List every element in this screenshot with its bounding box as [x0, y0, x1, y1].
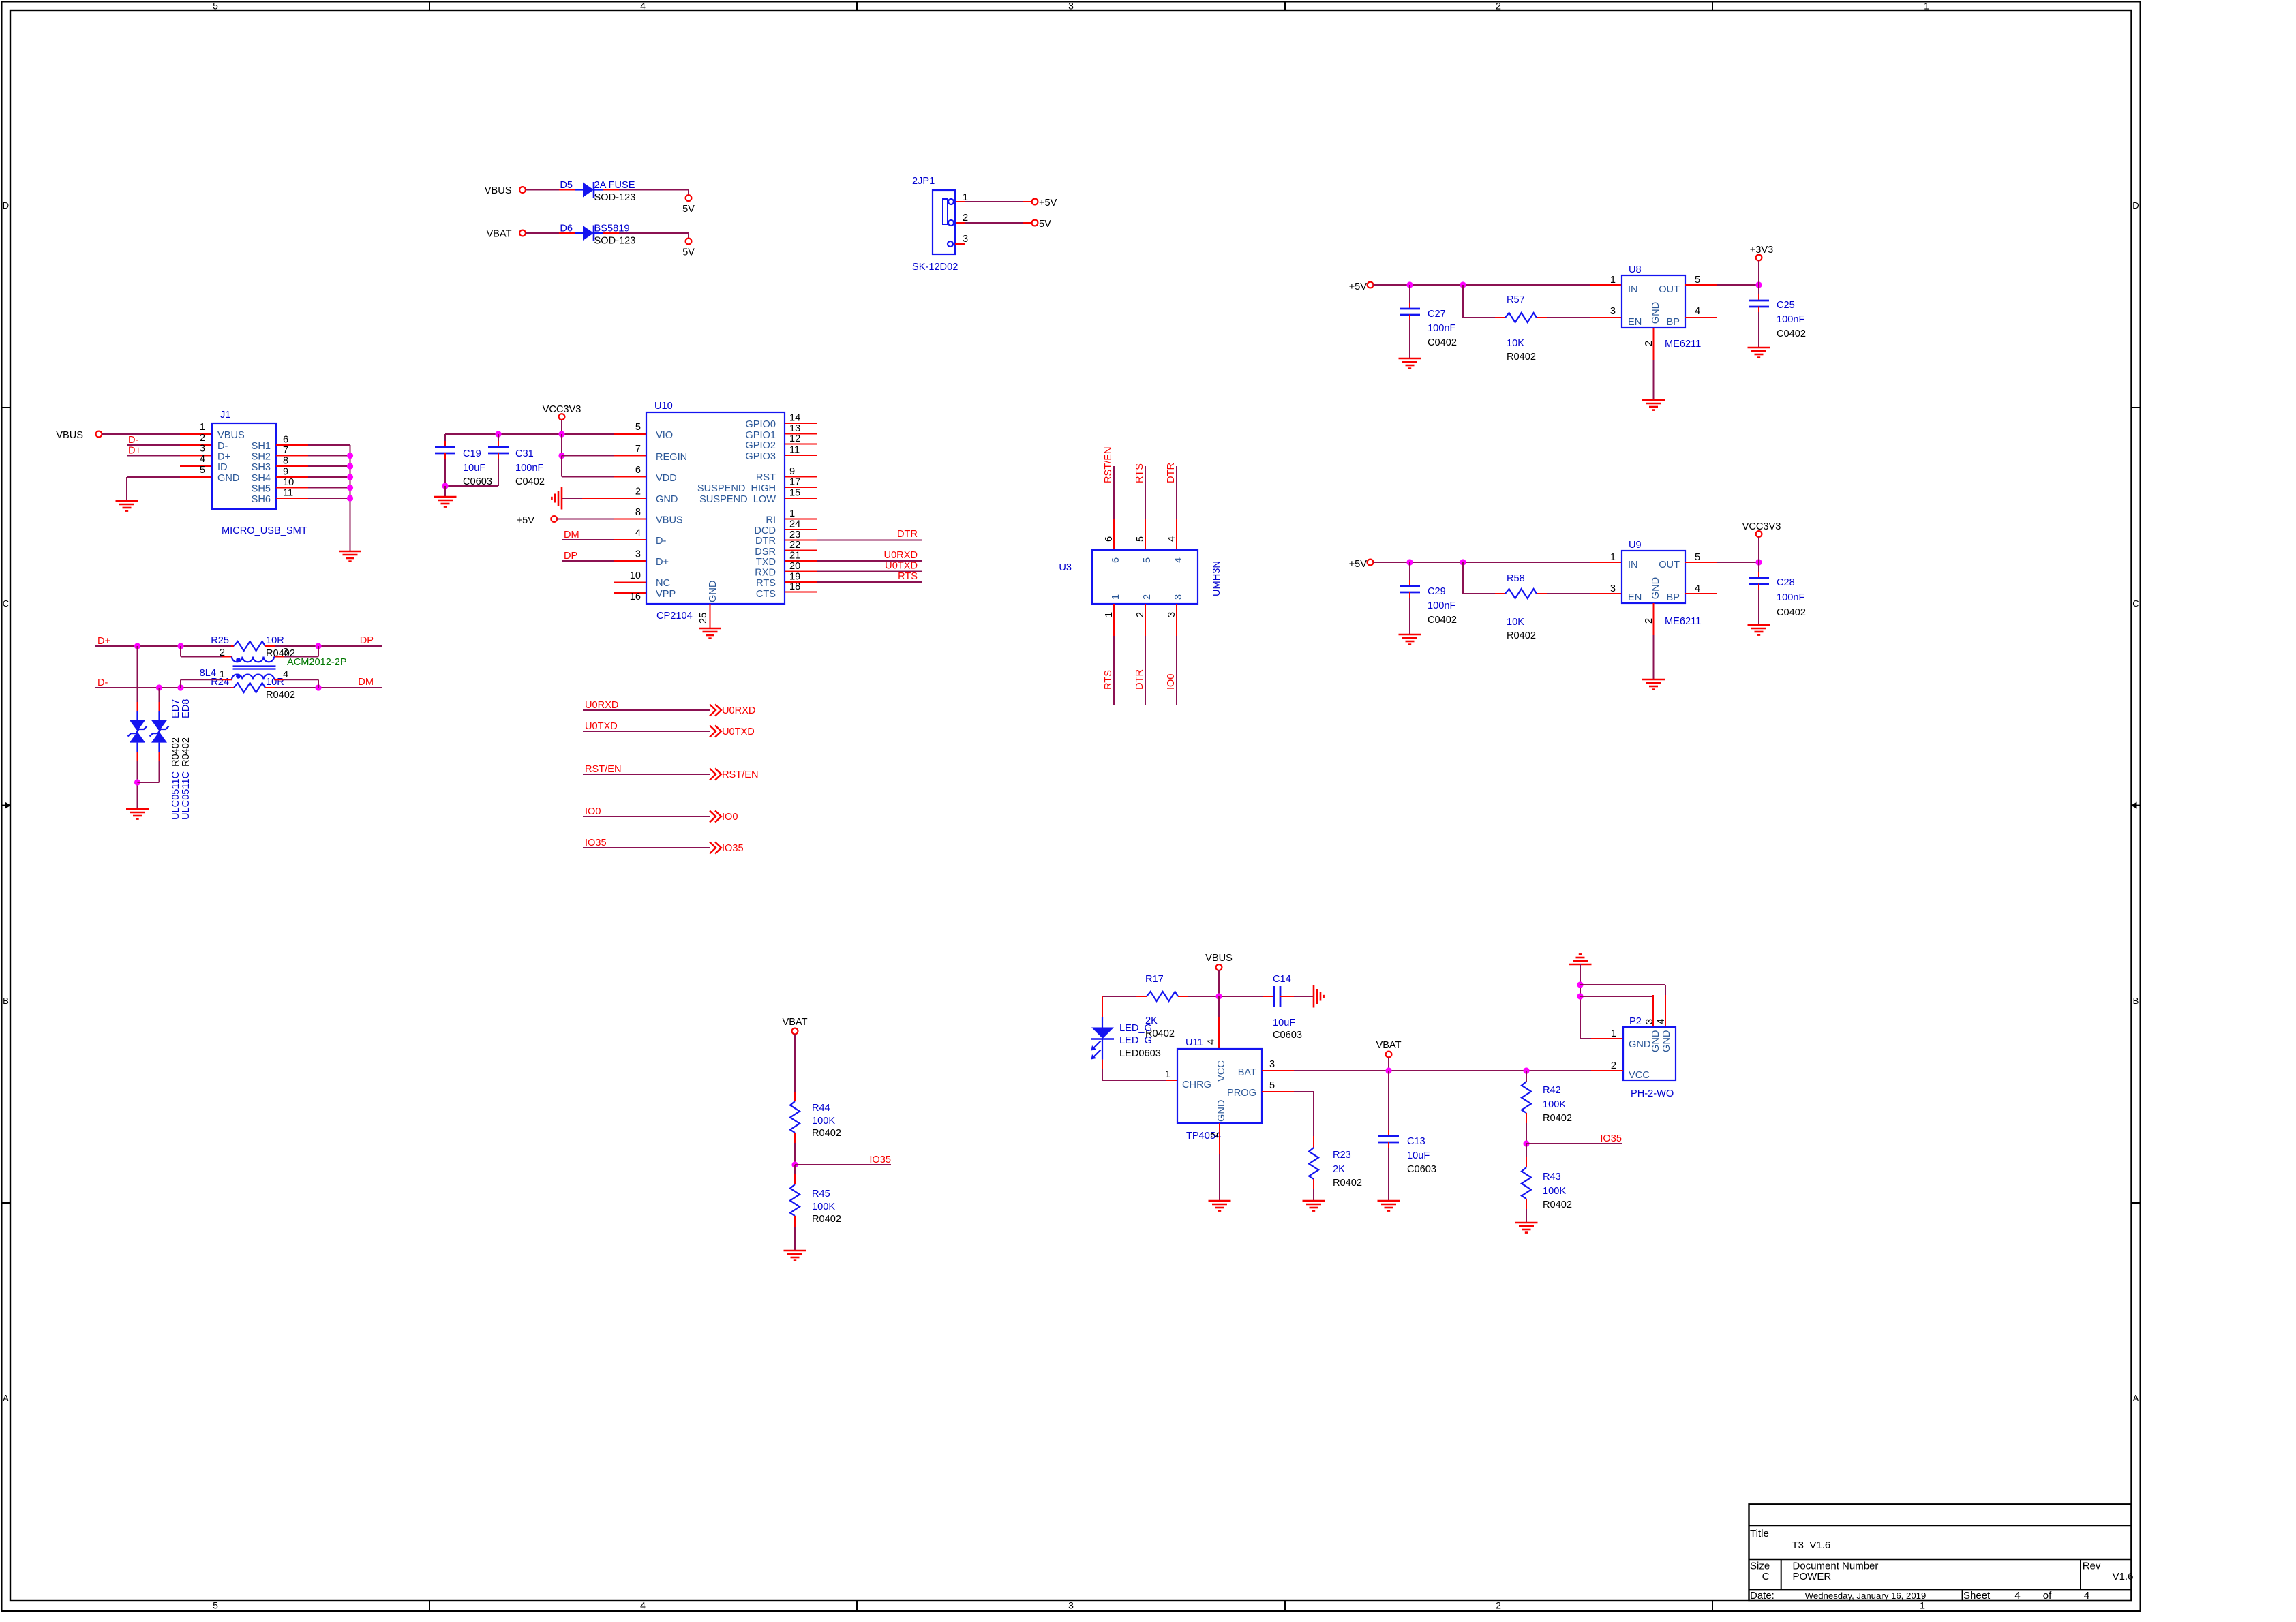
svg-text:3: 3 — [635, 549, 641, 560]
svg-text:D5: D5 — [560, 180, 573, 191]
svg-text:100nF: 100nF — [1428, 323, 1455, 334]
svg-text:100K: 100K — [1543, 1186, 1566, 1197]
svg-text:DSR: DSR — [755, 547, 776, 557]
svg-text:21: 21 — [789, 551, 800, 562]
svg-text:4: 4 — [283, 669, 288, 680]
svg-text:100nF: 100nF — [1428, 600, 1455, 611]
svg-text:2: 2 — [1496, 1, 1501, 12]
svg-text:SH3: SH3 — [252, 462, 271, 473]
svg-text:C14: C14 — [1273, 974, 1291, 985]
svg-text:16: 16 — [630, 592, 641, 602]
svg-text:1: 1 — [200, 422, 205, 433]
svg-text:VBUS: VBUS — [217, 430, 245, 441]
svg-text:2: 2 — [1611, 1060, 1616, 1071]
svg-text:3: 3 — [963, 234, 968, 245]
svg-text:+5V: +5V — [1039, 198, 1057, 209]
svg-text:D+: D+ — [217, 452, 230, 463]
svg-text:100K: 100K — [1543, 1099, 1566, 1110]
svg-text:3: 3 — [1644, 1019, 1655, 1024]
svg-text:R0402: R0402 — [1543, 1113, 1572, 1124]
svg-text:of: of — [2043, 1590, 2052, 1602]
svg-text:OUT: OUT — [1659, 284, 1680, 295]
svg-text:R58: R58 — [1507, 573, 1525, 584]
svg-text:1: 1 — [1920, 1600, 1925, 1611]
svg-text:5: 5 — [213, 1, 218, 12]
svg-text:5V: 5V — [682, 204, 695, 215]
svg-text:3: 3 — [200, 444, 205, 455]
svg-text:VBUS: VBUS — [56, 430, 83, 441]
svg-text:3: 3 — [1173, 594, 1184, 600]
svg-text:4: 4 — [1166, 536, 1177, 542]
svg-text:R0402: R0402 — [266, 690, 295, 701]
svg-text:B: B — [2133, 996, 2139, 1006]
svg-text:D-: D- — [97, 677, 108, 688]
svg-text:9: 9 — [789, 466, 795, 477]
svg-text:Wednesday, January 16, 2019: Wednesday, January 16, 2019 — [1805, 1591, 1927, 1601]
svg-text:DP: DP — [564, 551, 577, 562]
svg-text:IO35: IO35 — [1600, 1133, 1622, 1144]
svg-text:1: 1 — [1611, 1028, 1616, 1039]
svg-text:10uF: 10uF — [463, 463, 485, 474]
svg-text:GPIO2: GPIO2 — [745, 440, 776, 451]
svg-text:1: 1 — [1111, 594, 1121, 600]
svg-text:D+: D+ — [656, 557, 669, 568]
svg-text:RST/EN: RST/EN — [1103, 446, 1114, 483]
svg-text:R0402: R0402 — [812, 1214, 841, 1225]
svg-text:C31: C31 — [515, 448, 534, 459]
svg-text:GND: GND — [217, 473, 239, 484]
svg-text:C29: C29 — [1428, 586, 1446, 597]
svg-text:R0402: R0402 — [181, 737, 192, 767]
svg-text:U0TXD: U0TXD — [585, 721, 618, 732]
svg-text:U0RXD: U0RXD — [884, 550, 918, 561]
svg-text:SH2: SH2 — [252, 452, 271, 463]
svg-text:C0402: C0402 — [1428, 615, 1457, 626]
svg-text:6: 6 — [1104, 536, 1115, 542]
svg-text:GND: GND — [1661, 1030, 1672, 1052]
svg-text:TXD: TXD — [756, 557, 776, 568]
svg-text:SK-12D02: SK-12D02 — [912, 262, 958, 273]
svg-text:GND: GND — [1629, 1039, 1650, 1050]
svg-text:4: 4 — [2084, 1590, 2089, 1602]
svg-text:U0TXD: U0TXD — [885, 561, 918, 572]
svg-text:24: 24 — [789, 519, 800, 530]
svg-text:VBAT: VBAT — [782, 1017, 807, 1028]
svg-text:GPIO3: GPIO3 — [745, 451, 776, 462]
svg-text:5: 5 — [213, 1600, 218, 1611]
svg-text:5: 5 — [1269, 1080, 1275, 1091]
svg-text:GND: GND — [1650, 302, 1661, 324]
svg-text:U0RXD: U0RXD — [722, 705, 755, 716]
svg-text:+5V: +5V — [517, 515, 535, 526]
svg-text:4: 4 — [2014, 1590, 2020, 1602]
svg-text:SOD-123: SOD-123 — [594, 236, 636, 247]
svg-text:Rev: Rev — [2083, 1561, 2101, 1572]
svg-text:SH4: SH4 — [252, 473, 271, 484]
svg-text:IO0: IO0 — [1166, 673, 1177, 690]
svg-text:IO0: IO0 — [585, 806, 601, 817]
svg-text:Document Number: Document Number — [1793, 1561, 1879, 1572]
svg-text:3: 3 — [1610, 306, 1616, 317]
svg-text:R0402: R0402 — [1333, 1178, 1362, 1189]
svg-text:C0402: C0402 — [1777, 328, 1806, 339]
svg-text:T3_V1.6: T3_V1.6 — [1792, 1540, 1831, 1551]
svg-text:ED8: ED8 — [181, 699, 192, 718]
svg-text:VCC3V3: VCC3V3 — [1742, 521, 1781, 532]
svg-text:RTS: RTS — [1103, 670, 1114, 690]
svg-text:GND: GND — [1216, 1100, 1227, 1122]
svg-text:RST: RST — [756, 472, 776, 483]
svg-text:U0RXD: U0RXD — [585, 700, 618, 711]
svg-text:4: 4 — [640, 1, 646, 12]
svg-text:SOD-123: SOD-123 — [594, 192, 636, 203]
svg-text:5: 5 — [1695, 552, 1700, 563]
svg-text:C27: C27 — [1428, 309, 1446, 320]
svg-text:C19: C19 — [463, 448, 481, 459]
svg-text:+5V: +5V — [1349, 281, 1368, 292]
svg-text:10uF: 10uF — [1273, 1017, 1295, 1028]
svg-text:4: 4 — [1695, 583, 1700, 594]
svg-text:REGIN: REGIN — [656, 452, 687, 463]
svg-text:22: 22 — [789, 540, 800, 551]
svg-text:LED0603: LED0603 — [1119, 1048, 1161, 1059]
svg-text:4: 4 — [1656, 1019, 1667, 1024]
svg-text:A: A — [3, 1393, 9, 1403]
svg-text:25: 25 — [698, 613, 709, 624]
svg-text:2: 2 — [1142, 594, 1153, 600]
svg-text:BP: BP — [1667, 317, 1680, 328]
svg-text:PH-2-WO: PH-2-WO — [1631, 1088, 1674, 1099]
svg-text:R17: R17 — [1145, 974, 1164, 985]
svg-text:4: 4 — [1173, 557, 1184, 563]
svg-text:UMH3N: UMH3N — [1211, 561, 1222, 596]
svg-text:VBAT: VBAT — [1376, 1040, 1401, 1051]
svg-text:DTR: DTR — [1166, 463, 1177, 483]
svg-text:1: 1 — [1610, 552, 1616, 563]
svg-text:PROG: PROG — [1227, 1088, 1256, 1099]
svg-text:NC: NC — [656, 578, 670, 589]
svg-text:U9: U9 — [1629, 540, 1642, 551]
svg-text:17: 17 — [789, 477, 800, 488]
svg-text:19: 19 — [789, 572, 800, 583]
svg-text:A: A — [2133, 1393, 2139, 1403]
svg-text:+5V: +5V — [1349, 559, 1368, 570]
svg-text:RST/EN: RST/EN — [722, 769, 759, 780]
svg-text:LED_G: LED_G — [1119, 1035, 1152, 1046]
svg-text:7: 7 — [283, 445, 288, 456]
svg-text:7: 7 — [635, 444, 641, 455]
svg-text:D: D — [3, 200, 9, 211]
svg-text:GND: GND — [1650, 1030, 1661, 1052]
svg-text:5V: 5V — [682, 247, 695, 258]
svg-text:R57: R57 — [1507, 294, 1525, 305]
svg-text:C0402: C0402 — [1777, 607, 1806, 618]
svg-text:LED_G: LED_G — [1119, 1023, 1152, 1034]
svg-text:10: 10 — [630, 570, 641, 581]
svg-text:U10: U10 — [654, 401, 673, 412]
svg-text:D+: D+ — [97, 636, 110, 647]
svg-text:6: 6 — [283, 435, 288, 446]
svg-text:MICRO_USB_SMT: MICRO_USB_SMT — [222, 525, 307, 536]
svg-text:R0402: R0402 — [1507, 630, 1536, 641]
svg-text:3: 3 — [1610, 583, 1616, 594]
svg-text:V1.6: V1.6 — [2113, 1571, 2134, 1582]
svg-text:DP: DP — [360, 635, 374, 646]
svg-text:C25: C25 — [1777, 300, 1795, 311]
svg-text:4: 4 — [200, 454, 205, 465]
svg-text:R0402: R0402 — [812, 1128, 841, 1139]
svg-text:VDD: VDD — [656, 473, 677, 484]
svg-text:2: 2 — [1496, 1600, 1501, 1611]
svg-text:Sheet: Sheet — [1963, 1590, 1991, 1602]
svg-text:P2: P2 — [1629, 1016, 1642, 1027]
svg-text:4: 4 — [635, 528, 641, 539]
svg-text:C0603: C0603 — [1273, 1030, 1302, 1041]
svg-text:POWER: POWER — [1793, 1571, 1832, 1582]
svg-text:D-: D- — [656, 536, 667, 547]
svg-text:IO35: IO35 — [585, 838, 607, 848]
svg-text:5: 5 — [635, 422, 641, 433]
svg-text:1: 1 — [789, 508, 795, 519]
svg-text:ULC0511C: ULC0511C — [181, 771, 192, 820]
svg-text:VPP: VPP — [656, 589, 676, 600]
svg-text:GND: GND — [1650, 577, 1661, 599]
svg-text:8: 8 — [635, 507, 641, 518]
svg-text:GPIO1: GPIO1 — [745, 430, 776, 441]
svg-text:BP: BP — [1667, 592, 1680, 603]
svg-text:DTR: DTR — [897, 529, 918, 540]
svg-text:GND: GND — [708, 581, 719, 602]
svg-text:DTR: DTR — [755, 536, 776, 547]
svg-text:R45: R45 — [812, 1189, 830, 1199]
svg-text:SH5: SH5 — [252, 484, 271, 495]
svg-text:R0402: R0402 — [1507, 352, 1536, 363]
svg-text:C: C — [2132, 598, 2139, 609]
svg-text:VBUS: VBUS — [485, 185, 512, 196]
svg-text:2: 2 — [200, 433, 205, 444]
svg-text:U3: U3 — [1059, 562, 1072, 573]
svg-text:Title: Title — [1750, 1528, 1769, 1540]
svg-text:2: 2 — [963, 213, 968, 224]
svg-text:100nF: 100nF — [515, 463, 543, 474]
svg-text:10K: 10K — [1507, 617, 1524, 628]
svg-text:10R: 10R — [266, 677, 284, 688]
svg-text:10R: 10R — [266, 635, 284, 646]
svg-text:D: D — [2132, 200, 2139, 211]
svg-text:18: 18 — [789, 581, 800, 592]
svg-text:2JP1: 2JP1 — [912, 176, 935, 187]
svg-text:13: 13 — [789, 423, 800, 434]
svg-text:U0TXD: U0TXD — [722, 726, 755, 737]
svg-text:SUSPEND_HIGH: SUSPEND_HIGH — [697, 483, 776, 494]
svg-text:J1: J1 — [220, 410, 230, 420]
svg-text:VCC: VCC — [1629, 1070, 1650, 1081]
svg-text:12: 12 — [789, 433, 800, 444]
svg-text:C0402: C0402 — [515, 476, 545, 487]
svg-text:IO0: IO0 — [722, 812, 738, 823]
svg-text:D+: D+ — [128, 446, 141, 457]
svg-text:2: 2 — [635, 487, 641, 498]
svg-text:RST/EN: RST/EN — [585, 764, 622, 775]
svg-text:1: 1 — [1165, 1069, 1170, 1080]
svg-text:U8: U8 — [1629, 264, 1642, 275]
svg-text:VIO: VIO — [656, 430, 673, 441]
svg-text:GND: GND — [656, 494, 678, 505]
svg-text:SUSPEND_LOW: SUSPEND_LOW — [699, 494, 776, 505]
svg-text:Date:: Date: — [1750, 1590, 1774, 1602]
svg-text:10: 10 — [283, 477, 294, 488]
svg-text:D6: D6 — [560, 224, 573, 234]
svg-text:R44: R44 — [812, 1103, 830, 1114]
svg-text:IO35: IO35 — [869, 1154, 891, 1165]
svg-text:6: 6 — [1111, 557, 1121, 563]
svg-text:11: 11 — [283, 488, 293, 499]
svg-text:DTR: DTR — [1134, 669, 1145, 690]
svg-text:RI: RI — [766, 515, 776, 526]
svg-text:8: 8 — [283, 456, 288, 467]
svg-text:DM: DM — [358, 677, 374, 688]
svg-text:DM: DM — [564, 530, 579, 540]
svg-text:15: 15 — [789, 488, 800, 499]
svg-text:R0402: R0402 — [170, 737, 181, 767]
svg-text:GPIO0: GPIO0 — [745, 419, 776, 430]
svg-text:IN: IN — [1628, 284, 1638, 295]
svg-text:2: 2 — [1135, 612, 1146, 617]
svg-text:VBAT: VBAT — [486, 229, 511, 240]
svg-text:ED7: ED7 — [170, 699, 181, 718]
svg-text:23: 23 — [789, 530, 800, 540]
svg-text:1: 1 — [1610, 275, 1616, 286]
svg-text:R0402: R0402 — [1543, 1199, 1572, 1210]
svg-text:5: 5 — [1142, 557, 1153, 563]
svg-text:5: 5 — [200, 465, 205, 476]
svg-text:11: 11 — [789, 445, 800, 456]
svg-text:R23: R23 — [1333, 1150, 1351, 1161]
svg-text:3: 3 — [1166, 612, 1177, 617]
svg-text:4: 4 — [640, 1600, 646, 1611]
svg-text:SH1: SH1 — [252, 441, 271, 452]
svg-text:10uF: 10uF — [1407, 1150, 1430, 1161]
svg-text:Size: Size — [1750, 1561, 1770, 1572]
svg-text:3: 3 — [283, 647, 288, 658]
svg-text:DCD: DCD — [754, 525, 776, 536]
svg-text:1: 1 — [220, 669, 225, 680]
svg-text:4: 4 — [1695, 306, 1700, 317]
svg-text:B: B — [3, 996, 9, 1006]
svg-text:R43: R43 — [1543, 1172, 1561, 1182]
svg-text:100K: 100K — [812, 1202, 835, 1212]
svg-text:BAT: BAT — [1238, 1067, 1256, 1078]
svg-text:C: C — [3, 598, 9, 609]
svg-text:VBUS: VBUS — [1205, 953, 1233, 964]
svg-text:3: 3 — [1269, 1059, 1275, 1070]
svg-text:VBUS: VBUS — [656, 515, 683, 526]
svg-text:2: 2 — [1209, 1133, 1220, 1138]
svg-text:R42: R42 — [1543, 1085, 1561, 1096]
svg-text:IN: IN — [1628, 560, 1638, 570]
svg-text:RXD: RXD — [755, 568, 776, 579]
svg-text:SH6: SH6 — [252, 494, 271, 505]
svg-text:RTS: RTS — [1134, 463, 1145, 483]
svg-text:EN: EN — [1628, 592, 1642, 603]
svg-text:10K: 10K — [1507, 338, 1524, 349]
svg-text:U11: U11 — [1185, 1037, 1203, 1048]
svg-text:C0603: C0603 — [1407, 1164, 1436, 1175]
svg-text:100K: 100K — [812, 1116, 835, 1127]
svg-text:CTS: CTS — [756, 589, 776, 600]
svg-text:6: 6 — [635, 465, 641, 476]
svg-text:CHRG: CHRG — [1182, 1080, 1211, 1090]
svg-text:100nF: 100nF — [1777, 314, 1804, 325]
svg-text:IO35: IO35 — [722, 843, 744, 854]
svg-text:D-: D- — [128, 435, 139, 446]
svg-text:RTS: RTS — [756, 578, 776, 589]
svg-text:ME6211: ME6211 — [1665, 339, 1701, 350]
svg-text:D-: D- — [217, 441, 228, 452]
svg-text:20: 20 — [789, 561, 800, 572]
svg-text:14: 14 — [789, 413, 800, 424]
svg-text:2K: 2K — [1333, 1164, 1345, 1175]
svg-text:8L4: 8L4 — [200, 668, 216, 679]
svg-text:RTS: RTS — [898, 571, 918, 582]
svg-text:5V: 5V — [1039, 219, 1051, 230]
svg-text:1: 1 — [1924, 1, 1929, 12]
svg-text:5: 5 — [1135, 536, 1146, 542]
svg-text:9: 9 — [283, 467, 288, 478]
svg-text:C: C — [1762, 1571, 1770, 1582]
svg-text:4: 4 — [1206, 1039, 1217, 1045]
svg-text:100nF: 100nF — [1777, 592, 1804, 603]
svg-text:1: 1 — [1104, 612, 1115, 617]
svg-text:EN: EN — [1628, 317, 1642, 328]
svg-text:CP2104: CP2104 — [656, 611, 693, 622]
svg-text:ULC0511C: ULC0511C — [170, 771, 181, 820]
svg-text:3: 3 — [1068, 1, 1074, 12]
svg-text:+3V3: +3V3 — [1750, 245, 1774, 256]
svg-text:5: 5 — [1695, 275, 1700, 286]
svg-text:C13: C13 — [1407, 1136, 1425, 1147]
svg-text:C0402: C0402 — [1428, 337, 1457, 348]
svg-text:3: 3 — [1068, 1600, 1074, 1611]
svg-text:VCC: VCC — [1216, 1060, 1227, 1082]
svg-text:ID: ID — [217, 462, 228, 473]
svg-text:ACM2012-2P: ACM2012-2P — [287, 657, 347, 668]
svg-text:C28: C28 — [1777, 577, 1795, 588]
svg-text:R25: R25 — [211, 635, 229, 646]
svg-text:ME6211: ME6211 — [1665, 616, 1701, 627]
svg-text:OUT: OUT — [1659, 560, 1680, 570]
